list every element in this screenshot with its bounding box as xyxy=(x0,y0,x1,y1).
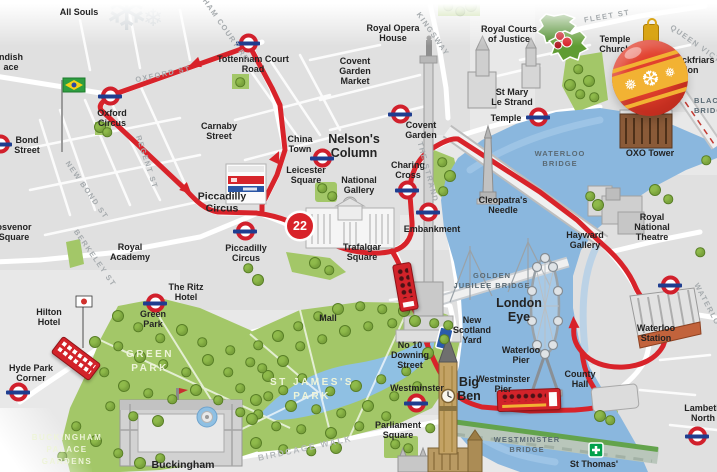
tree-icon xyxy=(257,363,267,373)
tree-icon xyxy=(235,407,245,417)
tree-icon xyxy=(134,351,146,363)
roundel-bar xyxy=(395,188,419,193)
label-golden-jubilee-bridge: GOLDEN JUBILEE BRIDGE xyxy=(454,271,531,291)
route-22-badge: 22 xyxy=(287,213,313,239)
tree-icon xyxy=(355,301,365,311)
tree-icon xyxy=(250,437,262,449)
label-the-strand: THE STRAND xyxy=(416,141,441,204)
label-royal-national-theatre: Royal National Theatre xyxy=(634,212,670,242)
tree-icon xyxy=(293,321,303,331)
tree-icon xyxy=(575,89,585,99)
tree-icon xyxy=(113,341,123,351)
tree-icon xyxy=(422,347,434,359)
roundel-bar xyxy=(233,229,257,234)
tree-icon xyxy=(339,325,351,337)
tree-icon xyxy=(376,374,386,384)
tree-icon xyxy=(243,263,253,273)
tree-icon xyxy=(390,439,400,449)
tree-icon xyxy=(350,380,362,392)
roundel-bar xyxy=(6,390,30,395)
tree-icon xyxy=(324,265,334,275)
tree-icon xyxy=(285,400,297,412)
tree-icon xyxy=(152,415,164,427)
tree-icon xyxy=(381,411,391,421)
tree-icon xyxy=(354,421,364,431)
tree-icon xyxy=(306,446,316,456)
tree-icon xyxy=(362,400,374,412)
tree-icon xyxy=(202,354,214,366)
tree-icon xyxy=(245,357,255,367)
tube-roundel-covent-garden xyxy=(388,105,412,124)
label-new-bond-st: NEW BOND ST xyxy=(64,159,111,220)
tree-icon xyxy=(102,127,112,137)
label-fleet-st: FLEET ST xyxy=(583,8,630,25)
label-piccadilly-circus-tube: Piccadilly Circus xyxy=(225,243,267,263)
label-berkeley-st: BERKELEY ST xyxy=(72,228,118,289)
tree-icon xyxy=(649,184,661,196)
label-waterloo-bridge: WATERLOO BRIDGE xyxy=(535,149,586,169)
tree-icon xyxy=(90,435,102,447)
tree-icon xyxy=(296,424,306,434)
tree-icon xyxy=(327,191,337,201)
tree-icon xyxy=(99,367,109,377)
tree-icon xyxy=(663,194,673,204)
label-covent-garden-market: Covent Garden Market xyxy=(339,56,371,86)
roundel-bar xyxy=(404,401,428,406)
tree-icon xyxy=(330,442,342,454)
tree-icon xyxy=(223,367,233,377)
tree-icon xyxy=(155,333,165,343)
label-piccadilly-circus-main: Piccadilly Circus xyxy=(198,191,246,215)
tree-icon xyxy=(311,404,321,414)
label-cavendish-partial: ndish ace xyxy=(0,52,23,72)
label-tottenham-court-road: Tottenham Court Road xyxy=(217,54,289,74)
christmas-bauble-icon: ❅❆❅ xyxy=(612,40,688,116)
label-hayward-gallery: Hayward Gallery xyxy=(566,230,604,250)
tree-icon xyxy=(272,330,284,342)
tube-roundel-leicester-square xyxy=(310,149,334,168)
label-leicester-square: Leicester Square xyxy=(286,165,326,185)
tree-icon xyxy=(250,394,262,406)
tree-icon xyxy=(71,421,81,431)
tree-icon xyxy=(429,318,439,328)
tree-icon xyxy=(181,367,191,377)
tree-icon xyxy=(105,401,115,411)
label-london-eye: London Eye xyxy=(496,296,542,324)
tree-icon xyxy=(57,451,67,461)
tube-roundel-embankment xyxy=(416,203,440,222)
tree-icon xyxy=(465,0,477,12)
tree-icon xyxy=(701,155,711,165)
tree-icon xyxy=(695,247,705,257)
tree-icon xyxy=(409,315,421,327)
tube-roundel-tottenham-court-road xyxy=(236,34,260,53)
tree-icon xyxy=(155,453,165,463)
bus-westminster-bridge-icon xyxy=(497,388,562,412)
tree-icon xyxy=(412,381,422,391)
tree-icon xyxy=(252,274,264,286)
tree-icon xyxy=(158,359,168,369)
tree-icon xyxy=(197,337,207,347)
tree-icon xyxy=(437,157,447,167)
tube-roundel-westminster xyxy=(404,394,428,413)
tree-icon xyxy=(167,394,177,404)
tree-icon xyxy=(403,443,413,453)
tree-icon xyxy=(235,77,245,87)
tree-icon xyxy=(425,423,435,433)
tree-icon xyxy=(143,388,153,398)
tree-icon xyxy=(325,386,335,396)
roundel-bar xyxy=(388,112,412,117)
tree-icon xyxy=(278,385,288,395)
label-waterloo-pier: Waterloo Pier xyxy=(502,345,540,365)
tube-roundel-bond-street xyxy=(0,135,12,154)
tree-icon xyxy=(295,341,305,351)
label-royal-academy: Royal Academy xyxy=(110,242,150,262)
label-regent-st: REGENT ST xyxy=(134,134,160,190)
roundel-bar xyxy=(143,301,167,306)
roundel-bar xyxy=(526,115,550,120)
tree-icon xyxy=(190,384,202,396)
label-nelsons-column: Nelson's Column xyxy=(328,132,380,160)
tree-icon xyxy=(455,6,465,16)
tree-icon xyxy=(573,64,583,74)
label-hyde-park-corner: Hyde Park Corner xyxy=(9,363,53,383)
roundel-bar xyxy=(310,156,334,161)
roundel-bar xyxy=(236,41,260,46)
tree-icon xyxy=(401,366,411,376)
label-temple: Temple xyxy=(491,113,522,123)
label-lambeth-north: Lambeth North xyxy=(684,403,717,423)
label-royal-opera-house: Royal Opera House xyxy=(366,23,419,43)
label-layer: All Soulsndish aceBond StreetOxford Circ… xyxy=(0,0,717,472)
tree-icon xyxy=(313,311,323,321)
tree-icon xyxy=(332,303,344,315)
tree-icon xyxy=(235,383,245,393)
tree-icon xyxy=(225,345,235,355)
tree-icon xyxy=(387,318,397,328)
tree-icon xyxy=(589,92,599,102)
label-waterloo-rd: WATERLOO RD xyxy=(692,282,717,349)
label-trafalgar-square: Trafalgar Square xyxy=(343,242,381,262)
tube-roundel-piccadilly-circus xyxy=(233,222,257,241)
label-st-thomas: St Thomas' xyxy=(570,459,618,469)
label-all-souls: All Souls xyxy=(60,7,99,17)
tree-icon xyxy=(297,373,307,383)
tree-icon xyxy=(389,391,399,401)
tree-icon xyxy=(592,199,604,211)
tree-icon xyxy=(271,421,281,431)
roundel-bar xyxy=(685,434,709,439)
roundel-bar xyxy=(0,142,12,147)
tree-icon xyxy=(213,395,223,405)
tree-icon xyxy=(317,334,327,344)
roundel-bar xyxy=(658,283,682,288)
label-charing-cross: Charing Cross xyxy=(391,160,425,180)
label-ritz-hotel: The Ritz Hotel xyxy=(169,282,204,302)
tree-icon xyxy=(438,186,448,196)
tree-icon xyxy=(594,410,606,422)
label-hilton-hotel: Hilton Hotel xyxy=(36,307,62,327)
tree-icon xyxy=(443,320,453,330)
tree-icon xyxy=(325,427,337,439)
tree-icon xyxy=(309,257,321,269)
tree-icon xyxy=(133,322,143,332)
label-waterloo-station: Waterloo Station xyxy=(637,323,675,343)
roundel-bar xyxy=(416,210,440,215)
tree-icon xyxy=(89,336,101,348)
tree-icon xyxy=(118,380,130,392)
label-cleopatras-needle: Cleopatra's Needle xyxy=(479,195,528,215)
tree-icon xyxy=(564,79,576,91)
label-new-scotland-yard: New Scotland Yard xyxy=(453,315,491,345)
label-tottenham-ct-rd-street: TTENHAM COURT RD xyxy=(186,0,251,64)
tree-icon xyxy=(246,413,258,425)
tree-icon xyxy=(176,324,188,336)
tree-icon xyxy=(112,310,124,322)
tube-roundel-oxford-circus xyxy=(98,87,122,106)
tree-icon xyxy=(263,391,273,401)
label-bond-street: Bond Street xyxy=(14,135,40,155)
label-embankment: Embankment xyxy=(404,224,461,234)
label-national-gallery: National Gallery xyxy=(341,175,377,195)
label-carnaby-street: Carnaby Street xyxy=(201,121,237,141)
tree-icon xyxy=(583,75,595,87)
roundel-bar xyxy=(98,94,122,99)
label-royal-courts: Royal Courts of Justice xyxy=(481,24,537,44)
label-kingsway: KINGSWAY xyxy=(415,10,452,57)
tree-icon xyxy=(134,457,146,469)
tree-icon xyxy=(363,321,373,331)
tree-icon xyxy=(444,170,456,182)
label-big-ben: Big Ben xyxy=(457,375,481,403)
tree-icon xyxy=(443,1,453,11)
label-china-town: China Town xyxy=(287,134,312,154)
tree-icon xyxy=(317,183,327,193)
tree-icon xyxy=(336,408,346,418)
label-parliament-square: Parliament Square xyxy=(375,420,421,440)
tube-roundel-green-park xyxy=(143,294,167,313)
tree-icon xyxy=(113,448,123,458)
tube-roundel-waterloo xyxy=(658,276,682,295)
tube-roundel-temple xyxy=(526,108,550,127)
label-grosvenor-partial: osvenor Square xyxy=(0,222,32,242)
tree-icon xyxy=(253,340,263,350)
tree-icon xyxy=(277,355,289,367)
tube-roundel-charing-cross xyxy=(395,181,419,200)
tree-icon xyxy=(439,334,449,344)
label-st-mary-le-strand: St Mary Le Strand xyxy=(491,87,533,107)
tree-icon xyxy=(605,415,615,425)
london-tour-map: ❄ ❄ All Soulsndish aceBond StreetOxford … xyxy=(0,0,717,472)
label-county-hall: County Hall xyxy=(565,369,596,389)
tube-roundel-hyde-park-corner xyxy=(6,383,30,402)
tree-icon xyxy=(278,444,288,454)
tree-icon xyxy=(377,304,387,314)
tube-roundel-lambeth-north xyxy=(685,427,709,446)
tree-icon xyxy=(128,411,138,421)
label-oxo-tower: OXO Tower xyxy=(626,148,674,158)
label-westminster-bridge: WESTMINSTER BRIDGE xyxy=(494,435,560,455)
label-oxford-st: OXFORD ST xyxy=(135,64,192,85)
label-blackfriars-bridge: BLACKFRIARS BRIDGE xyxy=(694,96,717,116)
